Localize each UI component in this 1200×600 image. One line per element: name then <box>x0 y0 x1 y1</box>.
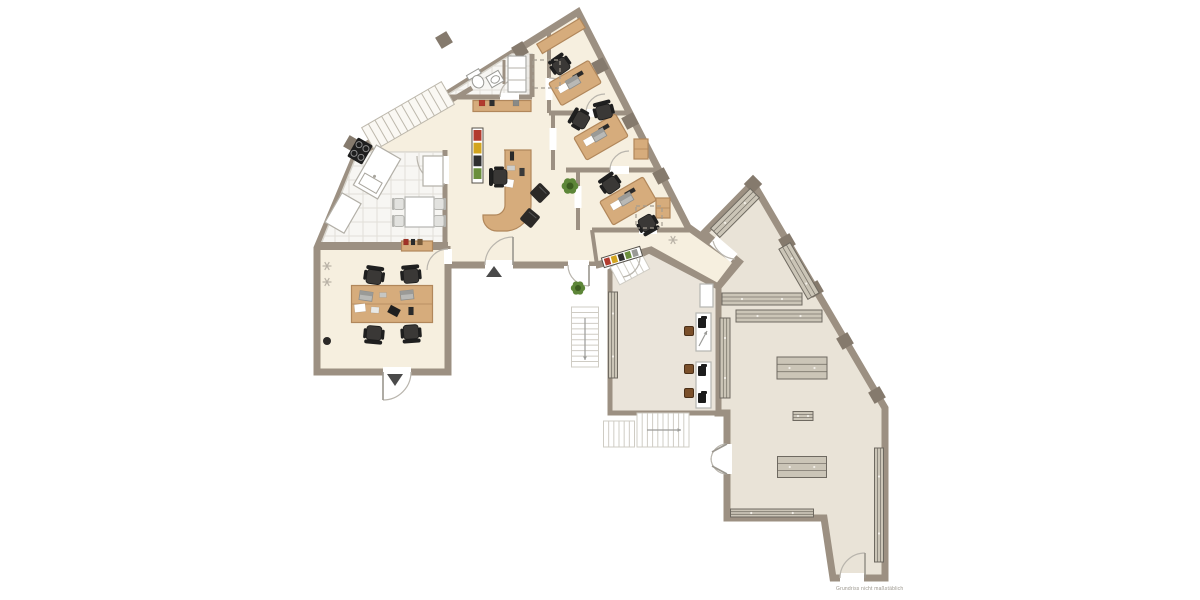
floor-plan-page: Grundriss nicht maßstäblich <box>0 0 1200 600</box>
watermark-text: Grundriss nicht maßstäblich <box>836 586 903 592</box>
bath-cabinet <box>508 56 526 92</box>
shelf-dot <box>807 415 809 417</box>
shelf-body <box>609 292 618 378</box>
storage-shelf <box>736 310 822 322</box>
office2-cabinet <box>634 139 648 159</box>
books-row <box>474 168 482 179</box>
chair-seat <box>366 325 382 340</box>
books-row <box>474 156 482 167</box>
shelf-dot <box>741 298 743 300</box>
wall-pilaster <box>435 31 453 49</box>
shelf-dot <box>792 512 794 514</box>
desk-item <box>411 239 415 245</box>
kitchen-chair <box>392 198 404 210</box>
kitchen-chair <box>434 198 446 210</box>
desk-item <box>409 307 414 315</box>
machine-arm <box>701 391 707 394</box>
machine-body <box>698 393 706 403</box>
floor-lamp-dot <box>323 337 331 345</box>
machine-arm <box>701 316 707 319</box>
shelf-dot <box>813 367 815 369</box>
desk-item <box>371 307 379 314</box>
exterior-stair-south-small <box>604 421 635 447</box>
kitchen-counter <box>423 156 443 186</box>
shelf-body <box>778 457 827 478</box>
machine-body <box>698 318 706 328</box>
white-table <box>405 197 434 227</box>
shelf-dot <box>781 298 783 300</box>
shelf-dot <box>797 415 799 417</box>
shelf-body <box>722 293 802 305</box>
desk-item <box>513 100 519 106</box>
plant-center <box>575 285 581 291</box>
entrance-arrow <box>387 374 403 386</box>
shelf-body <box>736 310 822 322</box>
laptop <box>359 291 373 302</box>
chair-seat <box>493 170 507 185</box>
chair-arm <box>494 167 504 170</box>
storage-shelf <box>609 292 618 378</box>
chair-seat <box>366 269 383 285</box>
shelf-dot <box>612 312 614 314</box>
machine-arm <box>701 364 707 367</box>
storage-shelf <box>777 357 827 379</box>
chair-arm <box>494 185 504 188</box>
books-row <box>474 130 482 141</box>
shelf-dot <box>756 315 758 317</box>
kchair-seat <box>394 216 404 227</box>
kchair-back <box>392 215 395 227</box>
shelf-dot <box>878 475 880 477</box>
shelf-body <box>793 412 813 421</box>
stool <box>685 327 694 336</box>
chair-seat <box>403 324 419 339</box>
kchair-seat <box>434 216 444 227</box>
storage-shelf <box>793 412 813 421</box>
desk-item <box>380 293 387 298</box>
shelf-dot <box>878 532 880 534</box>
kitchen-chair <box>434 215 446 227</box>
kitchen-chair <box>392 215 404 227</box>
kchair-seat <box>394 199 404 210</box>
shelf-body <box>720 318 730 398</box>
desk-item <box>490 100 495 106</box>
storage-shelf <box>720 318 730 398</box>
white-table <box>700 284 713 307</box>
desk-item <box>479 100 485 106</box>
desk-item <box>418 239 423 245</box>
desk-item <box>520 168 525 176</box>
storage-shelf <box>778 457 827 478</box>
chair-back <box>489 168 493 186</box>
storage-shelf <box>722 293 802 305</box>
desk-item <box>354 303 366 312</box>
cabinet-body <box>508 56 526 92</box>
shelf-body <box>875 448 884 562</box>
plant-center <box>567 183 574 190</box>
floor-plan-canvas <box>0 0 1200 600</box>
kchair-back <box>444 198 447 210</box>
counter-top <box>423 156 443 186</box>
shelf-dot <box>724 337 726 339</box>
storage-shelf <box>875 448 884 562</box>
shelf-dot <box>612 355 614 357</box>
machine-body <box>698 366 706 376</box>
shelf-dot <box>789 466 791 468</box>
shelf-body <box>731 509 814 517</box>
books-row <box>474 143 482 154</box>
desk-item <box>404 239 409 245</box>
shelf-dot <box>813 466 815 468</box>
stool <box>685 365 694 374</box>
shelf-dot <box>788 367 790 369</box>
stool <box>685 389 694 398</box>
shelf-dot <box>750 512 752 514</box>
storage-shelf <box>731 509 814 517</box>
kchair-seat <box>434 199 444 210</box>
bookshelf <box>472 128 483 183</box>
laptop <box>400 290 414 300</box>
desk-item <box>510 152 514 161</box>
kchair-back <box>392 198 395 210</box>
office3-cabinet <box>656 198 670 218</box>
chair-seat <box>403 268 419 283</box>
office-chair <box>489 167 507 188</box>
shelf-dot <box>799 315 801 317</box>
shelf-dot <box>724 377 726 379</box>
kchair-back <box>444 215 447 227</box>
shelf-body <box>777 357 827 379</box>
desk-item <box>507 166 515 171</box>
